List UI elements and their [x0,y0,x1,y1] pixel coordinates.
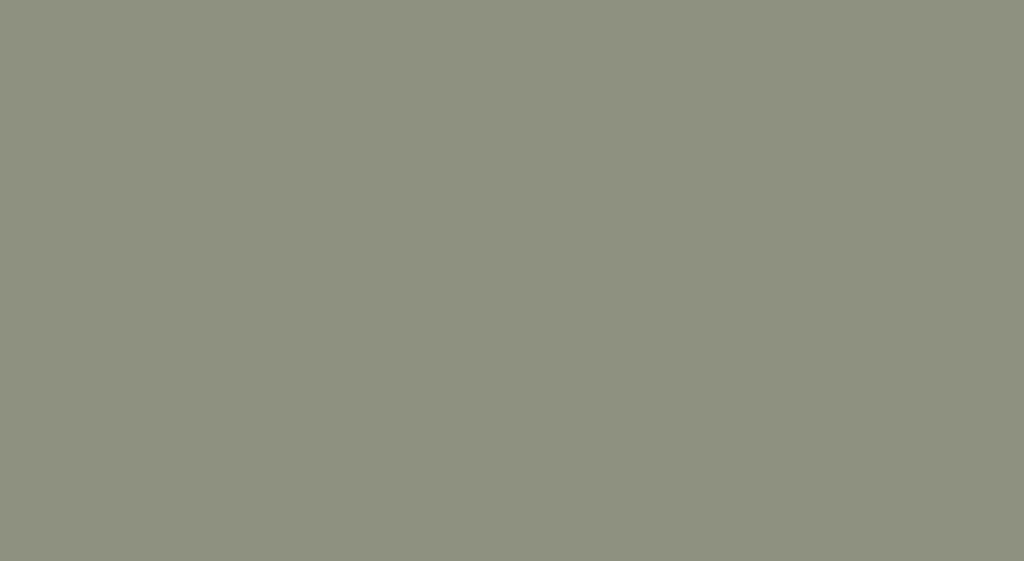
cadastral-map-svg [0,0,1024,561]
map-viewport[interactable] [0,0,1024,561]
